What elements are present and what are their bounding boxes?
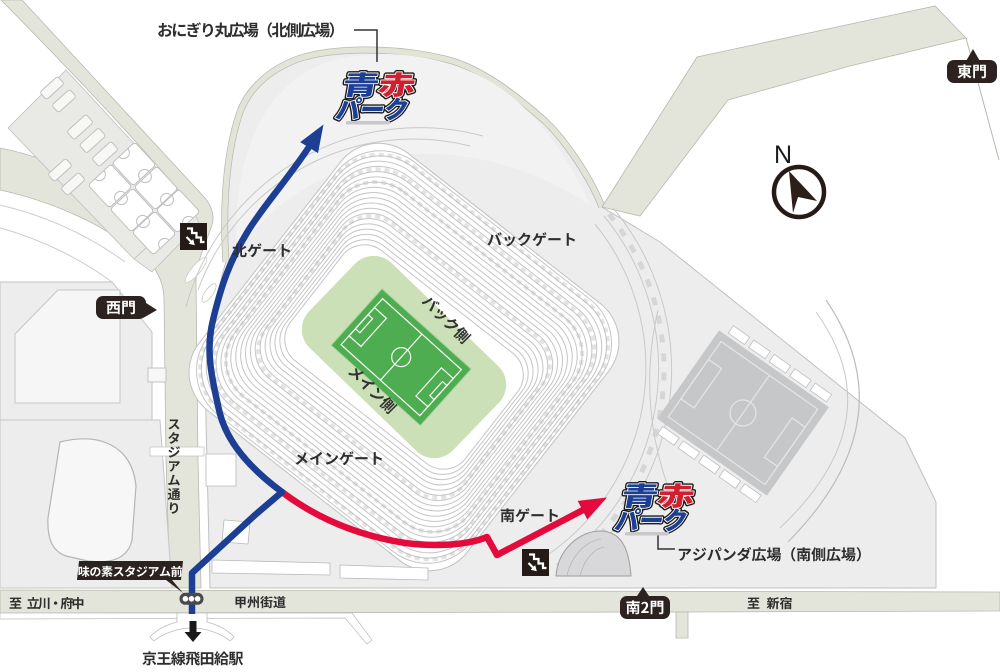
svg-text:N: N xyxy=(774,141,792,169)
